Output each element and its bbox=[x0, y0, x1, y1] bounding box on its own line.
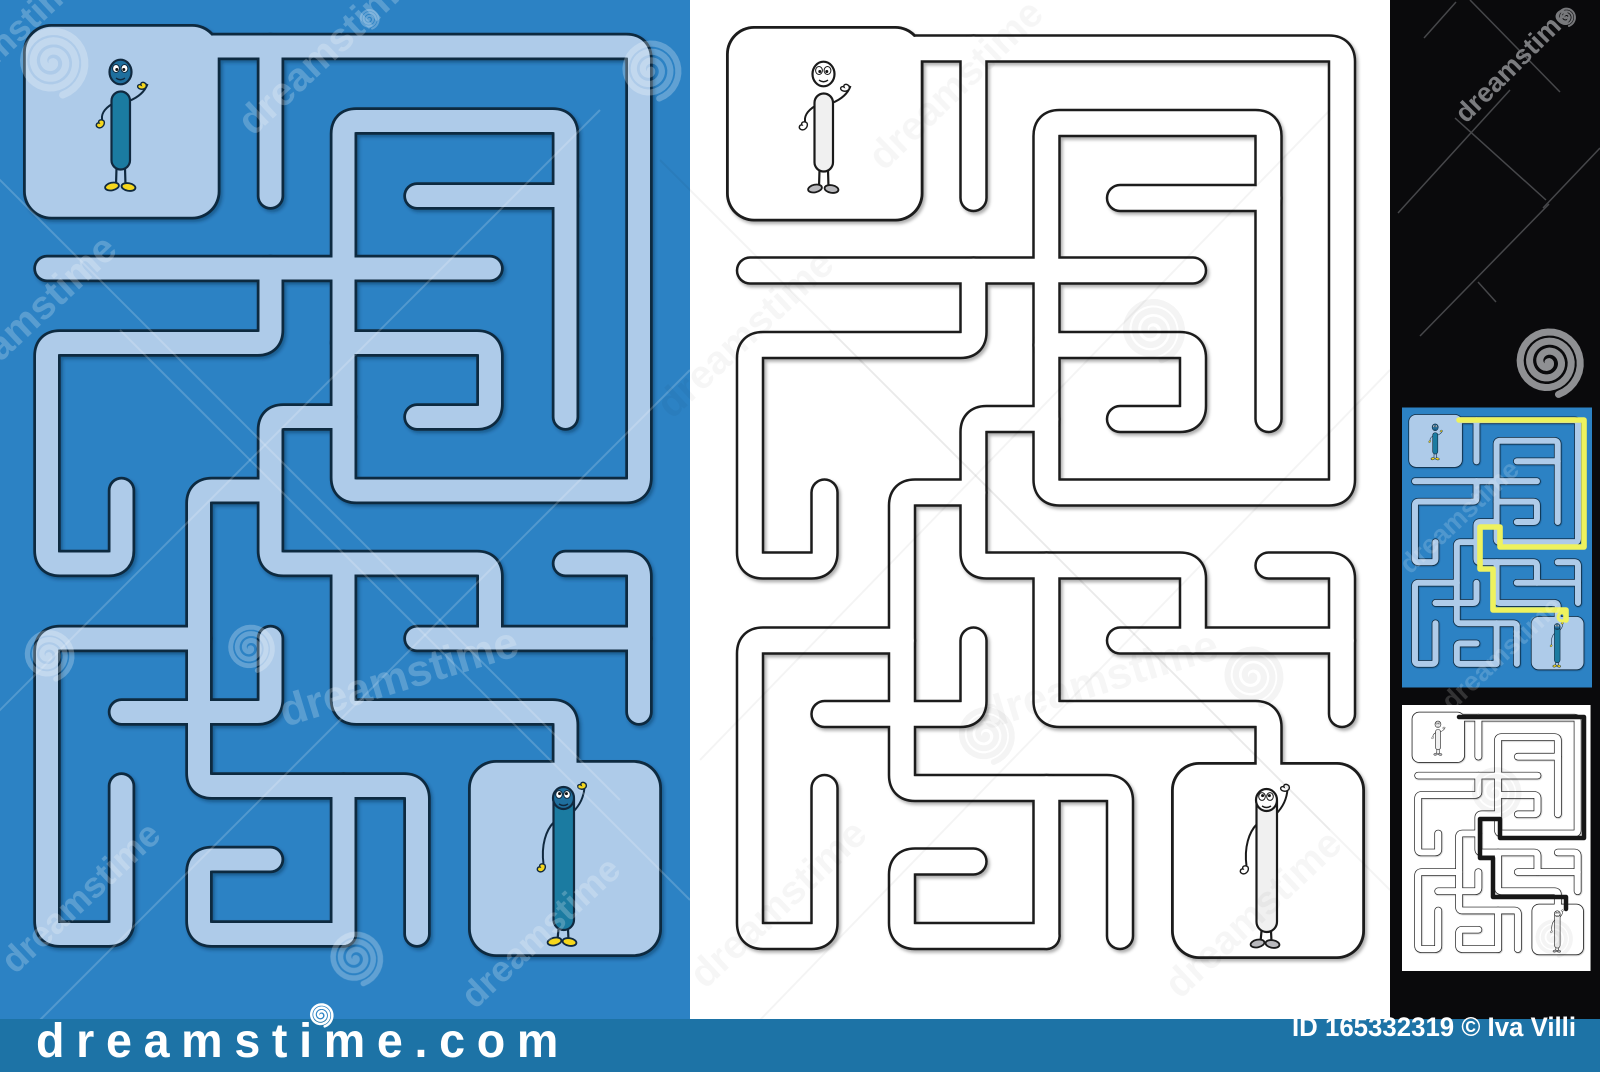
svg-text:ID 165332319 © Iva Villi: ID 165332319 © Iva Villi bbox=[1292, 1012, 1576, 1042]
svg-text:dreamstime.com: dreamstime.com bbox=[36, 1015, 570, 1068]
